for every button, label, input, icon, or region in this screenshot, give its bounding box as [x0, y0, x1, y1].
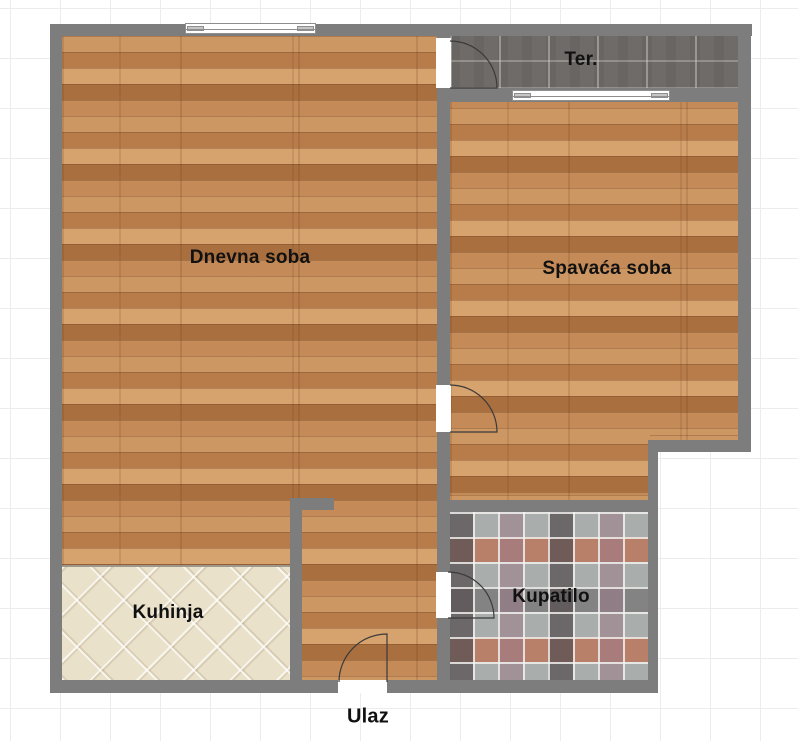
wall-step-bedroom: [648, 440, 751, 452]
wall-top: [50, 24, 752, 36]
wall-left: [50, 24, 62, 692]
wall-right-lower: [648, 440, 658, 692]
bedroom-floor-lower: [450, 435, 650, 502]
bathroom-door-opening: [436, 572, 451, 618]
wall-hall-vertical: [290, 498, 302, 692]
window-pane-line: [513, 96, 669, 97]
window-pane-line: [186, 29, 315, 30]
label-bedroom: Spavaća soba: [542, 258, 671, 280]
label-terrace: Ter.: [564, 49, 597, 71]
label-kitchen: Kuhinja: [132, 602, 203, 624]
bedroom-door-opening: [436, 385, 451, 432]
label-bathroom: Kupatilo: [512, 586, 590, 608]
label-living-room: Dnevna soba: [190, 247, 310, 269]
terrace-door-opening: [436, 38, 451, 88]
floor-plan: Dnevna soba Spavaća soba Ter. Kuhinja Ku…: [0, 0, 798, 741]
label-entrance: Ulaz: [347, 706, 389, 729]
bedroom-window: [512, 90, 670, 101]
wall-bedroom-bottom: [437, 500, 658, 512]
wall-hall-stub: [290, 498, 334, 510]
living-room-window: [185, 23, 316, 34]
entrance-door-opening: [338, 680, 387, 693]
